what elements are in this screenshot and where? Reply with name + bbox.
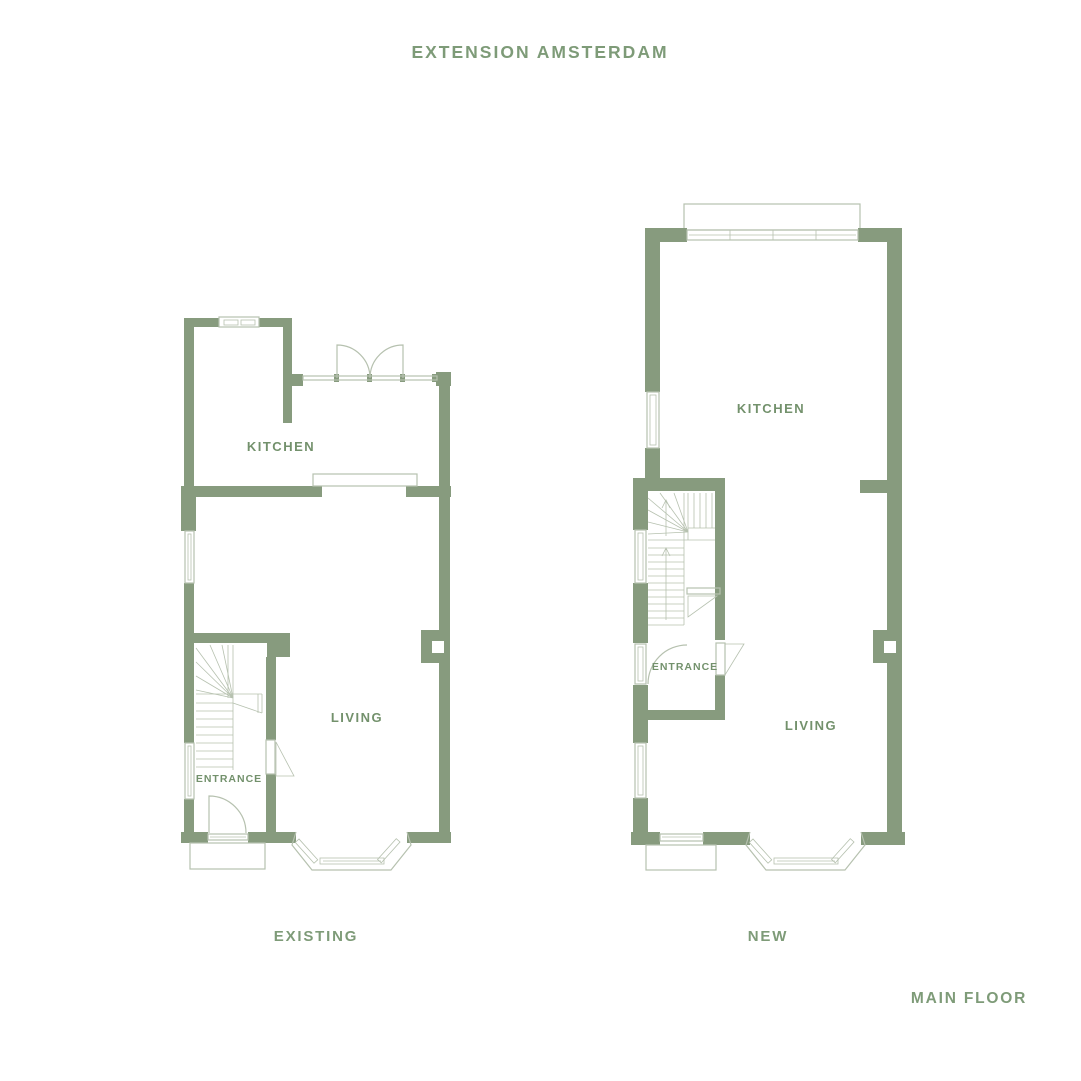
- new-floor-plan: [615, 195, 915, 885]
- page-title: EXTENSION AMSTERDAM: [411, 42, 668, 63]
- sliding-door: [687, 230, 858, 240]
- room-label-kitchen-new: KITCHEN: [737, 401, 805, 416]
- plan-caption-new: NEW: [748, 928, 788, 945]
- room-label-living-new: LIVING: [785, 718, 837, 733]
- interior-door: [716, 643, 744, 675]
- new-walls: [631, 228, 905, 845]
- existing-floor-plan: [170, 300, 470, 880]
- porch: [646, 845, 716, 870]
- bay-window: [292, 832, 411, 870]
- interior-door: [266, 740, 294, 776]
- room-label-entrance-new: ENTRANCE: [652, 661, 718, 673]
- front-door: [208, 796, 248, 840]
- bottom-window: [660, 834, 703, 841]
- plan-caption-existing: EXISTING: [274, 928, 358, 945]
- room-label-living-existing: LIVING: [331, 710, 383, 725]
- floor-label: MAIN FLOOR: [911, 990, 1027, 1008]
- existing-walls: [181, 318, 451, 843]
- floor-plan-sheet: EXTENSION AMSTERDAM: [0, 0, 1081, 1081]
- kitchen-counter: [313, 474, 417, 486]
- room-label-entrance-existing: ENTRANCE: [196, 773, 262, 785]
- staircase: [196, 645, 262, 770]
- room-label-kitchen-existing: KITCHEN: [247, 439, 315, 454]
- terrace-outline: [684, 204, 860, 230]
- bay-window: [746, 832, 865, 870]
- porch: [190, 843, 265, 869]
- fireplace: [421, 630, 450, 663]
- french-doors: [303, 345, 437, 380]
- fireplace: [873, 630, 902, 663]
- kitchen-window: [219, 317, 259, 327]
